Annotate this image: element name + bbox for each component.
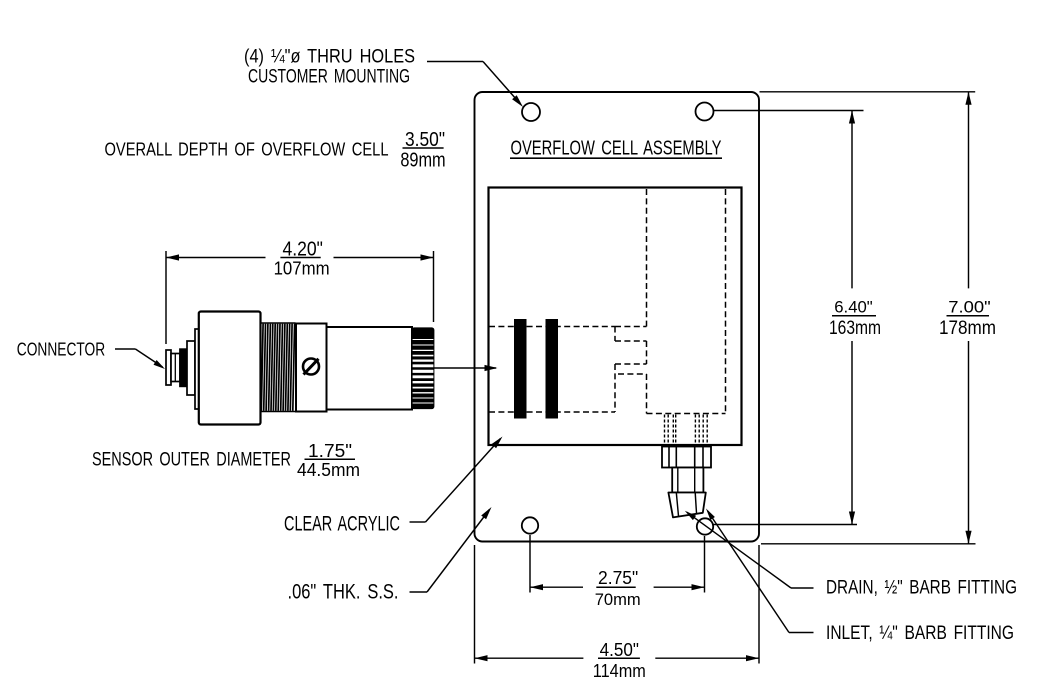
- svg-text:163mm: 163mm: [829, 318, 881, 339]
- svg-text:70mm: 70mm: [595, 590, 641, 609]
- svg-text:CLEAR ACRYLIC: CLEAR ACRYLIC: [284, 512, 400, 535]
- svg-text:SENSOR OUTER DIAMETER: SENSOR OUTER DIAMETER: [92, 449, 291, 470]
- svg-text:DRAIN, ½" BARB FITTING: DRAIN, ½" BARB FITTING: [826, 576, 1017, 598]
- svg-text:4.50": 4.50": [600, 640, 639, 660]
- svg-text:(4) ¼"ø THRU HOLES: (4) ¼"ø THRU HOLES: [244, 46, 415, 68]
- svg-text:89mm: 89mm: [400, 150, 445, 172]
- svg-text:INLET, ¼" BARB FITTING: INLET, ¼" BARB FITTING: [826, 622, 1014, 644]
- svg-text:107mm: 107mm: [274, 258, 330, 279]
- svg-text:178mm: 178mm: [939, 318, 996, 339]
- svg-text:44.5mm: 44.5mm: [297, 460, 360, 480]
- svg-text:6.40": 6.40": [834, 298, 873, 317]
- svg-text:CUSTOMER MOUNTING: CUSTOMER MOUNTING: [248, 65, 410, 87]
- svg-text:CONNECTOR: CONNECTOR: [17, 339, 105, 359]
- svg-text:114mm: 114mm: [593, 661, 646, 681]
- svg-text:OVERALL DEPTH OF OVERFLOW CELL: OVERALL DEPTH OF OVERFLOW CELL: [105, 139, 389, 160]
- svg-text:7.00": 7.00": [948, 298, 990, 317]
- svg-text:1.75": 1.75": [308, 440, 352, 461]
- svg-text:OVERFLOW CELL ASSEMBLY: OVERFLOW CELL ASSEMBLY: [511, 138, 722, 160]
- svg-text:2.75": 2.75": [598, 568, 638, 588]
- svg-text:.06" THK. S.S.: .06" THK. S.S.: [288, 581, 399, 604]
